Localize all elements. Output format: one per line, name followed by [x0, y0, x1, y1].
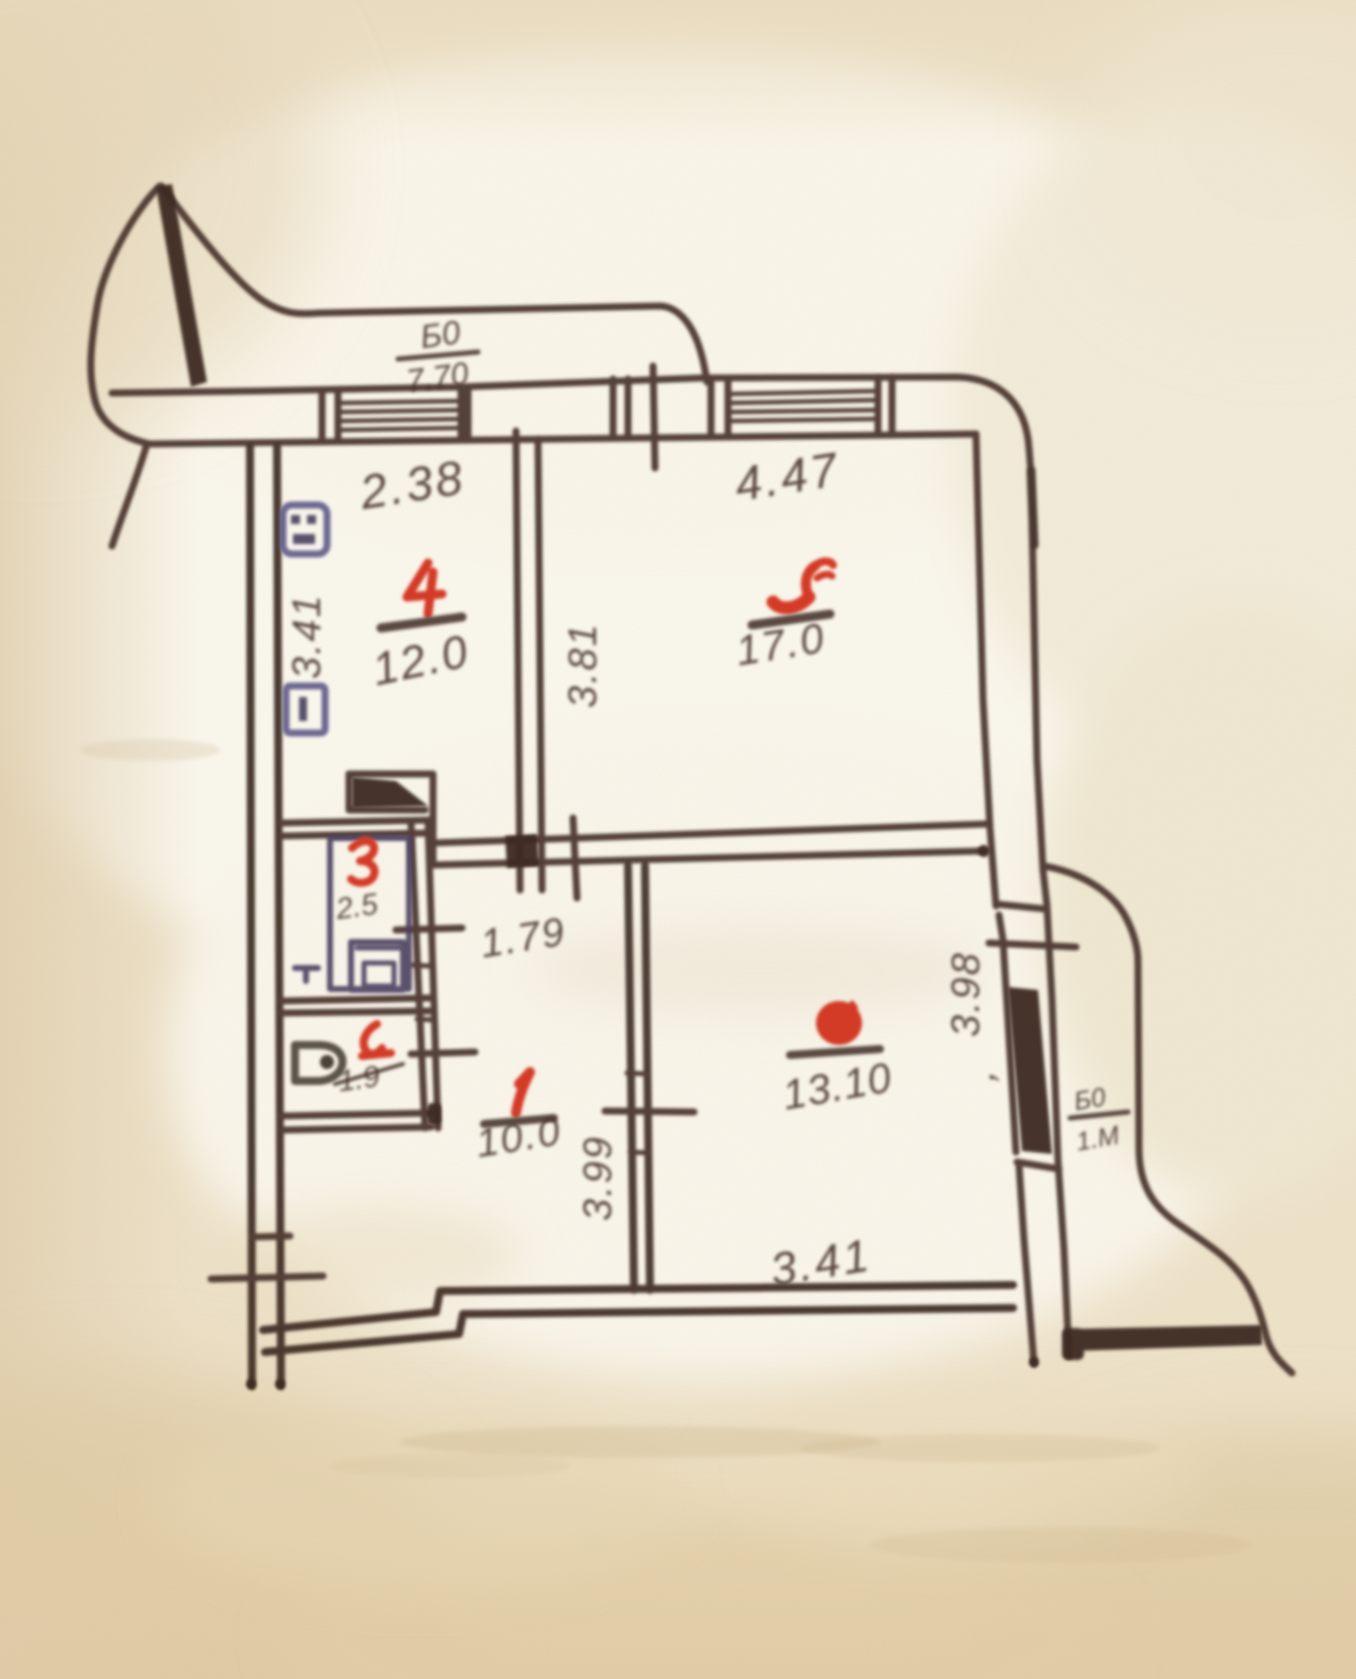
- svg-text:3.41: 3.41: [285, 593, 329, 679]
- svg-text:3.81: 3.81: [561, 622, 605, 708]
- svg-text:2.5: 2.5: [333, 888, 380, 927]
- svg-text:Б0: Б0: [418, 313, 463, 355]
- svg-text:Б0: Б0: [1072, 1081, 1109, 1116]
- svg-text:1.9: 1.9: [336, 1060, 382, 1099]
- svg-text:3.98: 3.98: [944, 951, 988, 1037]
- svg-text:3.99: 3.99: [576, 1135, 620, 1221]
